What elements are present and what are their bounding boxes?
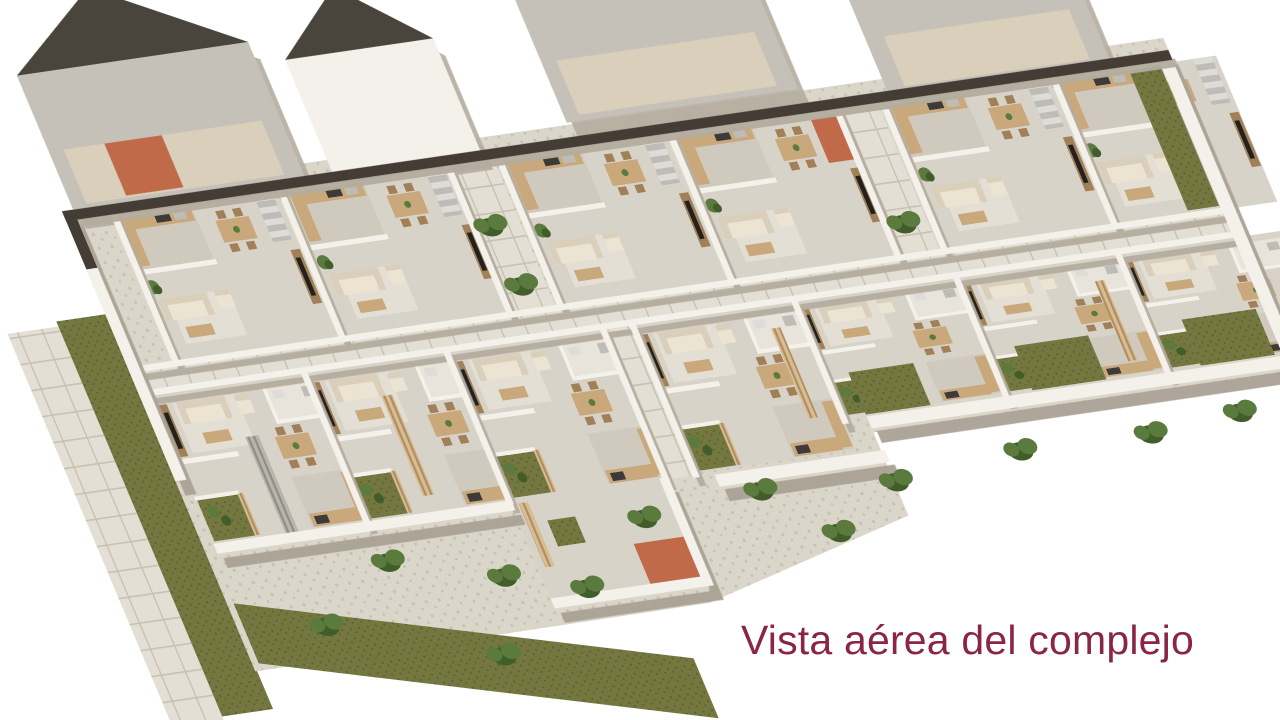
slide-caption: Vista aérea del complejo xyxy=(741,618,1194,663)
slide: Vista aérea del complejo xyxy=(0,0,1280,720)
aerial-render xyxy=(0,0,1280,720)
site xyxy=(0,0,1280,720)
